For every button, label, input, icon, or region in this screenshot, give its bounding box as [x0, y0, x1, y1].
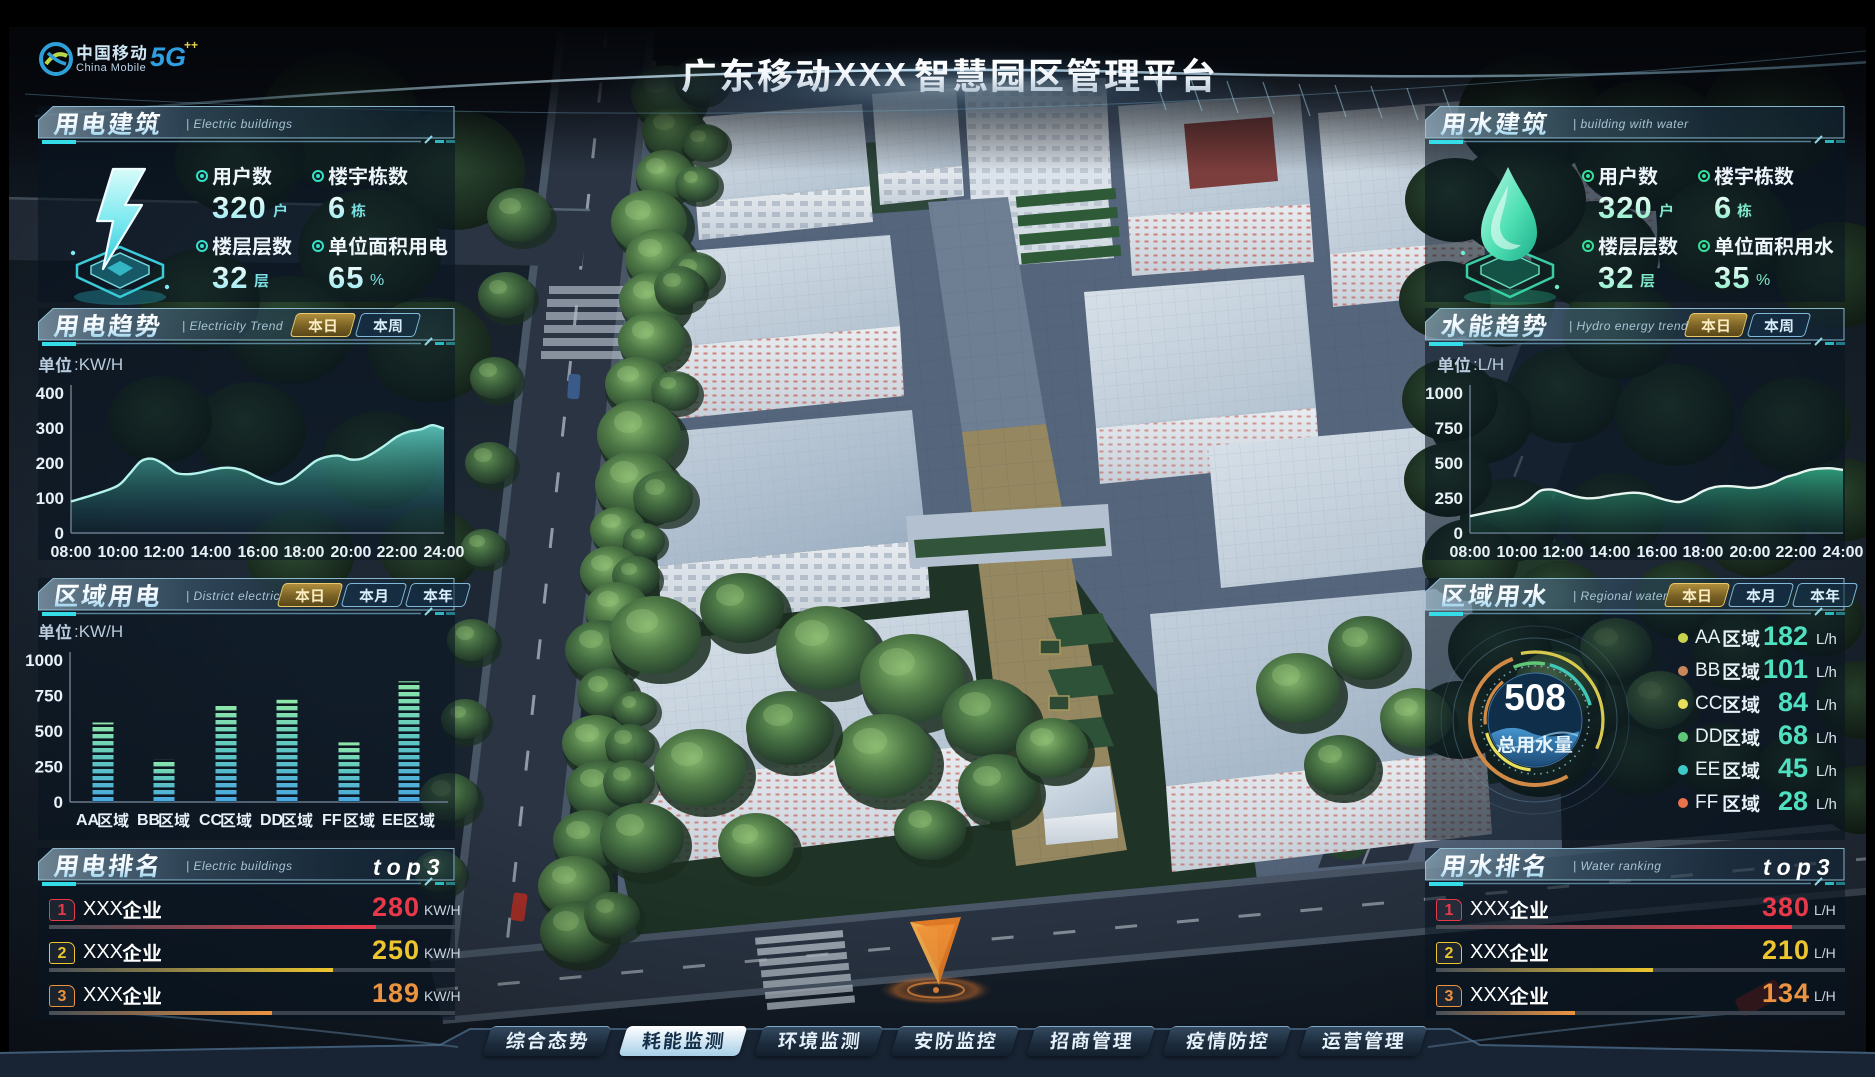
svg-text:18:00: 18:00 — [284, 544, 325, 561]
svg-text:300: 300 — [36, 419, 64, 438]
svg-text:500: 500 — [1435, 454, 1463, 473]
svg-text:EE: EE — [382, 812, 404, 829]
svg-text:18:00: 18:00 — [1683, 544, 1724, 561]
svg-text:BB: BB — [137, 812, 160, 829]
svg-text:24:00: 24:00 — [1823, 544, 1864, 561]
svg-text:AA: AA — [76, 812, 100, 829]
svg-text:200: 200 — [36, 454, 64, 473]
svg-text::KW/H: :KW/H — [74, 355, 123, 374]
svg-text:400: 400 — [36, 384, 64, 403]
svg-text:08:00: 08:00 — [51, 544, 92, 561]
svg-text:14:00: 14:00 — [1590, 544, 1631, 561]
svg-text:22:00: 22:00 — [377, 544, 418, 561]
svg-text:08:00: 08:00 — [1450, 544, 1491, 561]
svg-text:500: 500 — [35, 722, 63, 741]
svg-text:1000: 1000 — [25, 651, 63, 670]
svg-text:20:00: 20:00 — [331, 544, 372, 561]
svg-text:10:00: 10:00 — [1497, 544, 1538, 561]
svg-text:20:00: 20:00 — [1730, 544, 1771, 561]
svg-text:14:00: 14:00 — [191, 544, 232, 561]
svg-text::KW/H: :KW/H — [74, 622, 123, 641]
svg-text:FF: FF — [322, 812, 342, 829]
svg-text:750: 750 — [35, 687, 63, 706]
svg-text:12:00: 12:00 — [1543, 544, 1584, 561]
svg-text:16:00: 16:00 — [1637, 544, 1678, 561]
svg-text:CC: CC — [199, 812, 223, 829]
svg-text:DD: DD — [260, 812, 283, 829]
svg-text:12:00: 12:00 — [144, 544, 185, 561]
svg-text:0: 0 — [55, 524, 64, 543]
svg-text:250: 250 — [1435, 489, 1463, 508]
svg-text:16:00: 16:00 — [238, 544, 279, 561]
svg-text:1000: 1000 — [1425, 384, 1463, 403]
svg-text:XXX: XXX — [834, 56, 909, 93]
svg-text:0: 0 — [1454, 524, 1463, 543]
svg-text:0: 0 — [54, 793, 63, 812]
svg-text:508: 508 — [1504, 677, 1566, 718]
svg-text:750: 750 — [1435, 419, 1463, 438]
svg-text:24:00: 24:00 — [424, 544, 465, 561]
svg-text:250: 250 — [35, 758, 63, 777]
svg-text:10:00: 10:00 — [98, 544, 139, 561]
svg-text:100: 100 — [36, 489, 64, 508]
svg-text:22:00: 22:00 — [1776, 544, 1817, 561]
svg-text::L/H: :L/H — [1473, 355, 1504, 374]
